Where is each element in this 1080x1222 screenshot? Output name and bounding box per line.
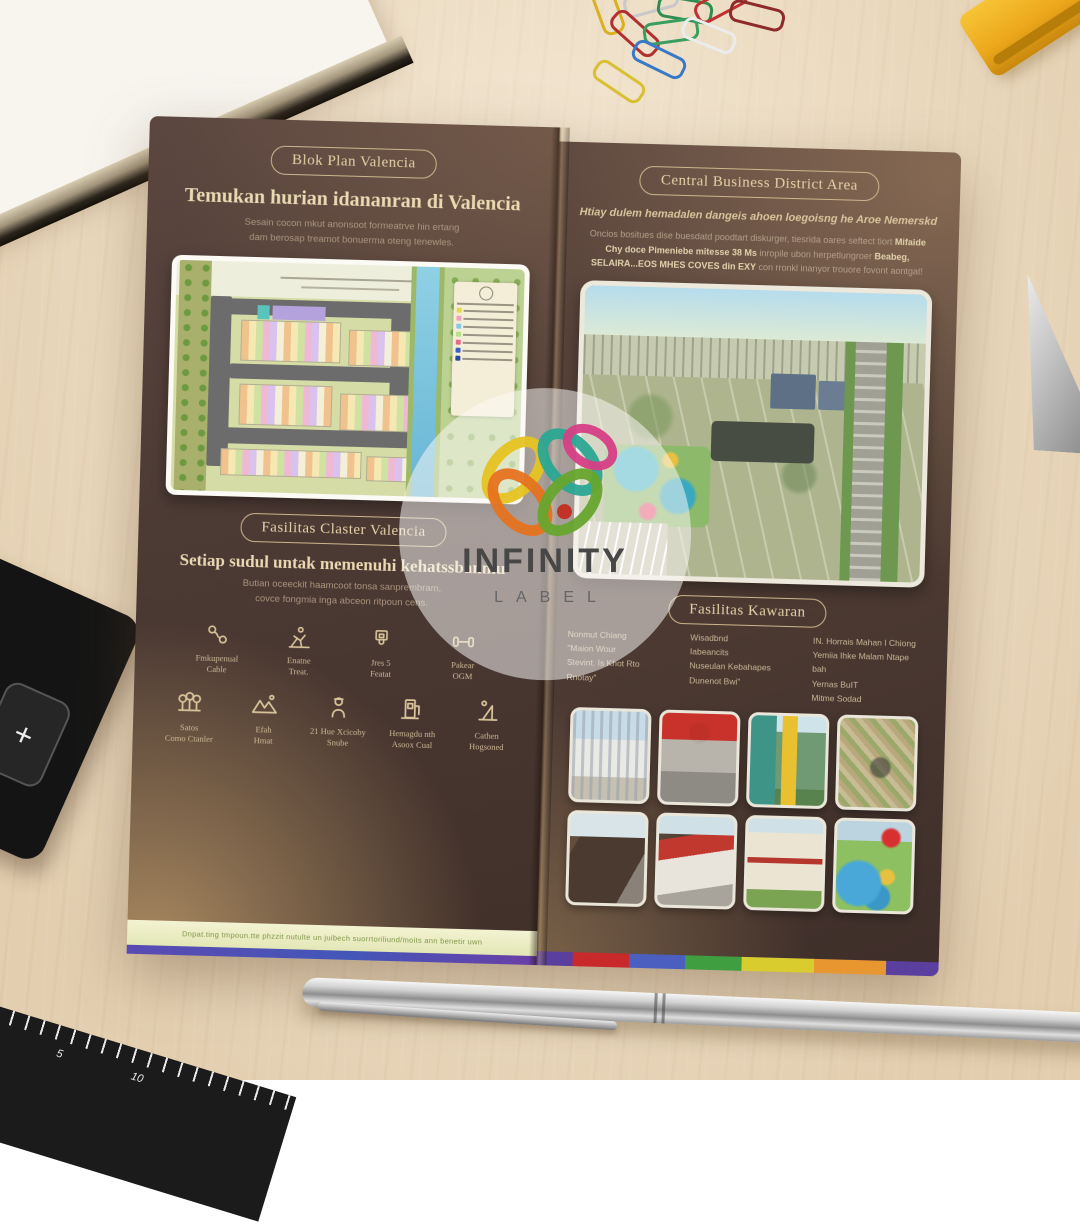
site-plan-housing-block [239,384,333,428]
amenity-park: Satos Como Ctanler [154,688,224,746]
amenity-label: Efah Hmat [254,724,274,747]
charging-station-icon [399,695,428,724]
amenity-label: 21 Hue Xcicoby Snube [310,726,366,750]
cbd-body-part: inropile ubon herpetlungroer [757,248,875,261]
photo-tile-hospital-building [743,815,827,912]
amenity-security: 21 Hue Xcicoby Snube [303,692,373,750]
site-plan-housing-block [220,448,362,479]
photo-tile-museum-building [565,810,649,907]
ruler-number: 10 [129,1070,144,1085]
watermark-title: INFINITY [462,542,628,581]
pen-ring [653,993,657,1023]
amenity-hills-view: Efah Hmat [229,690,299,748]
legend-row [456,332,513,339]
cbd-badge: Central Business District Area [639,166,879,202]
convention-hall-roof [711,421,815,464]
amenity-underground-cable: Fmkupenual Cable [178,621,255,677]
facility-column-3: IN. Horrais Mahan I Chiong Yemiia Ihke M… [811,633,926,708]
legend-row [456,340,513,347]
photo-tile-waterpark [832,817,916,914]
fasilitas-kawasan-badge: Fasilitas Kawaran [668,594,827,627]
photo-grid [565,707,918,915]
block-plan-badge: Blok Plan Valencia [271,145,437,179]
cbd-lead: Htiay dulem hemadalen dangeis ahoen loeg… [579,205,937,230]
trees-icon [173,689,206,718]
left-heading: Temukan hurian idananran di Valencia [184,184,521,216]
amenity-jogging-track: Enatne Treat. [260,623,337,679]
cbd-body: Oncios bositues dise buesdatd poodtart d… [586,227,929,280]
amenity-charging-station: Hemagdu nth Asoox Cual [378,694,448,752]
office-buildings [770,374,815,410]
amenity-label: Pakear OGM [451,660,475,684]
amenity-label: Enatne Treat. [287,655,311,679]
paper-clip [589,56,648,106]
site-plan-housing-block [240,320,341,364]
pen-ring [661,993,665,1023]
cbd-body-part: con rronkl inanyor trouore fovont aontga… [756,262,923,277]
mountains-icon [247,691,282,720]
legend-row [456,356,513,363]
red-dot-icon [557,504,572,519]
paper-clips [565,0,805,125]
photo-tile-motorcycle-dealer [657,709,741,806]
amenity-label: Satos Como Ctanler [165,721,214,745]
legend-row [456,348,513,355]
infinity-flower-logo [465,416,625,534]
ruler-number: 5 [55,1048,64,1061]
watermark-subtitle: LABEL [481,589,609,607]
photo-tile-city-aerial [835,714,919,811]
watermark: INFINITY LABEL [399,388,691,680]
amenity-playground: Cathen Hogsoned [452,697,522,755]
amenity-label: Fmkupenual Cable [195,652,238,676]
playground-icon [472,697,503,726]
amenity-label: Jres 5 Featat [370,657,391,681]
photo-tile-office-building [568,707,652,804]
basketball-hoop-icon [367,626,396,653]
legend-row [457,316,514,323]
jogging-track-icon [283,624,316,651]
site-plan-facility-block [257,305,270,319]
security-guard-icon [323,693,354,722]
legend-row [457,324,514,331]
amenity-basketball-court: Jres 5 Featat [342,625,419,681]
promo-strip-text: Dnpat.ting tmpoun.tte phzzit nutulte un … [182,929,482,946]
legend-row [457,308,514,315]
amenity-label: Hemagdu nth Asoox Cual [389,728,436,752]
paper-clip [727,0,787,33]
cable-icon [202,622,233,649]
site-plan-facility-block [273,305,326,320]
photo-tile-red-roof-store [654,812,738,909]
facility-column-2: Wisadbnd Iabeancits Nuseulan Kebahapes D… [689,630,804,705]
amenity-label: Cathen Hogsoned [469,730,504,754]
legend-logo [479,286,493,300]
left-intro: Sesain cocon mkut anonsoot formeatrve hi… [244,216,460,251]
photo-tile-campus-building [746,712,830,809]
calculator-plus-key: + [0,678,74,791]
legend-row [457,303,514,307]
